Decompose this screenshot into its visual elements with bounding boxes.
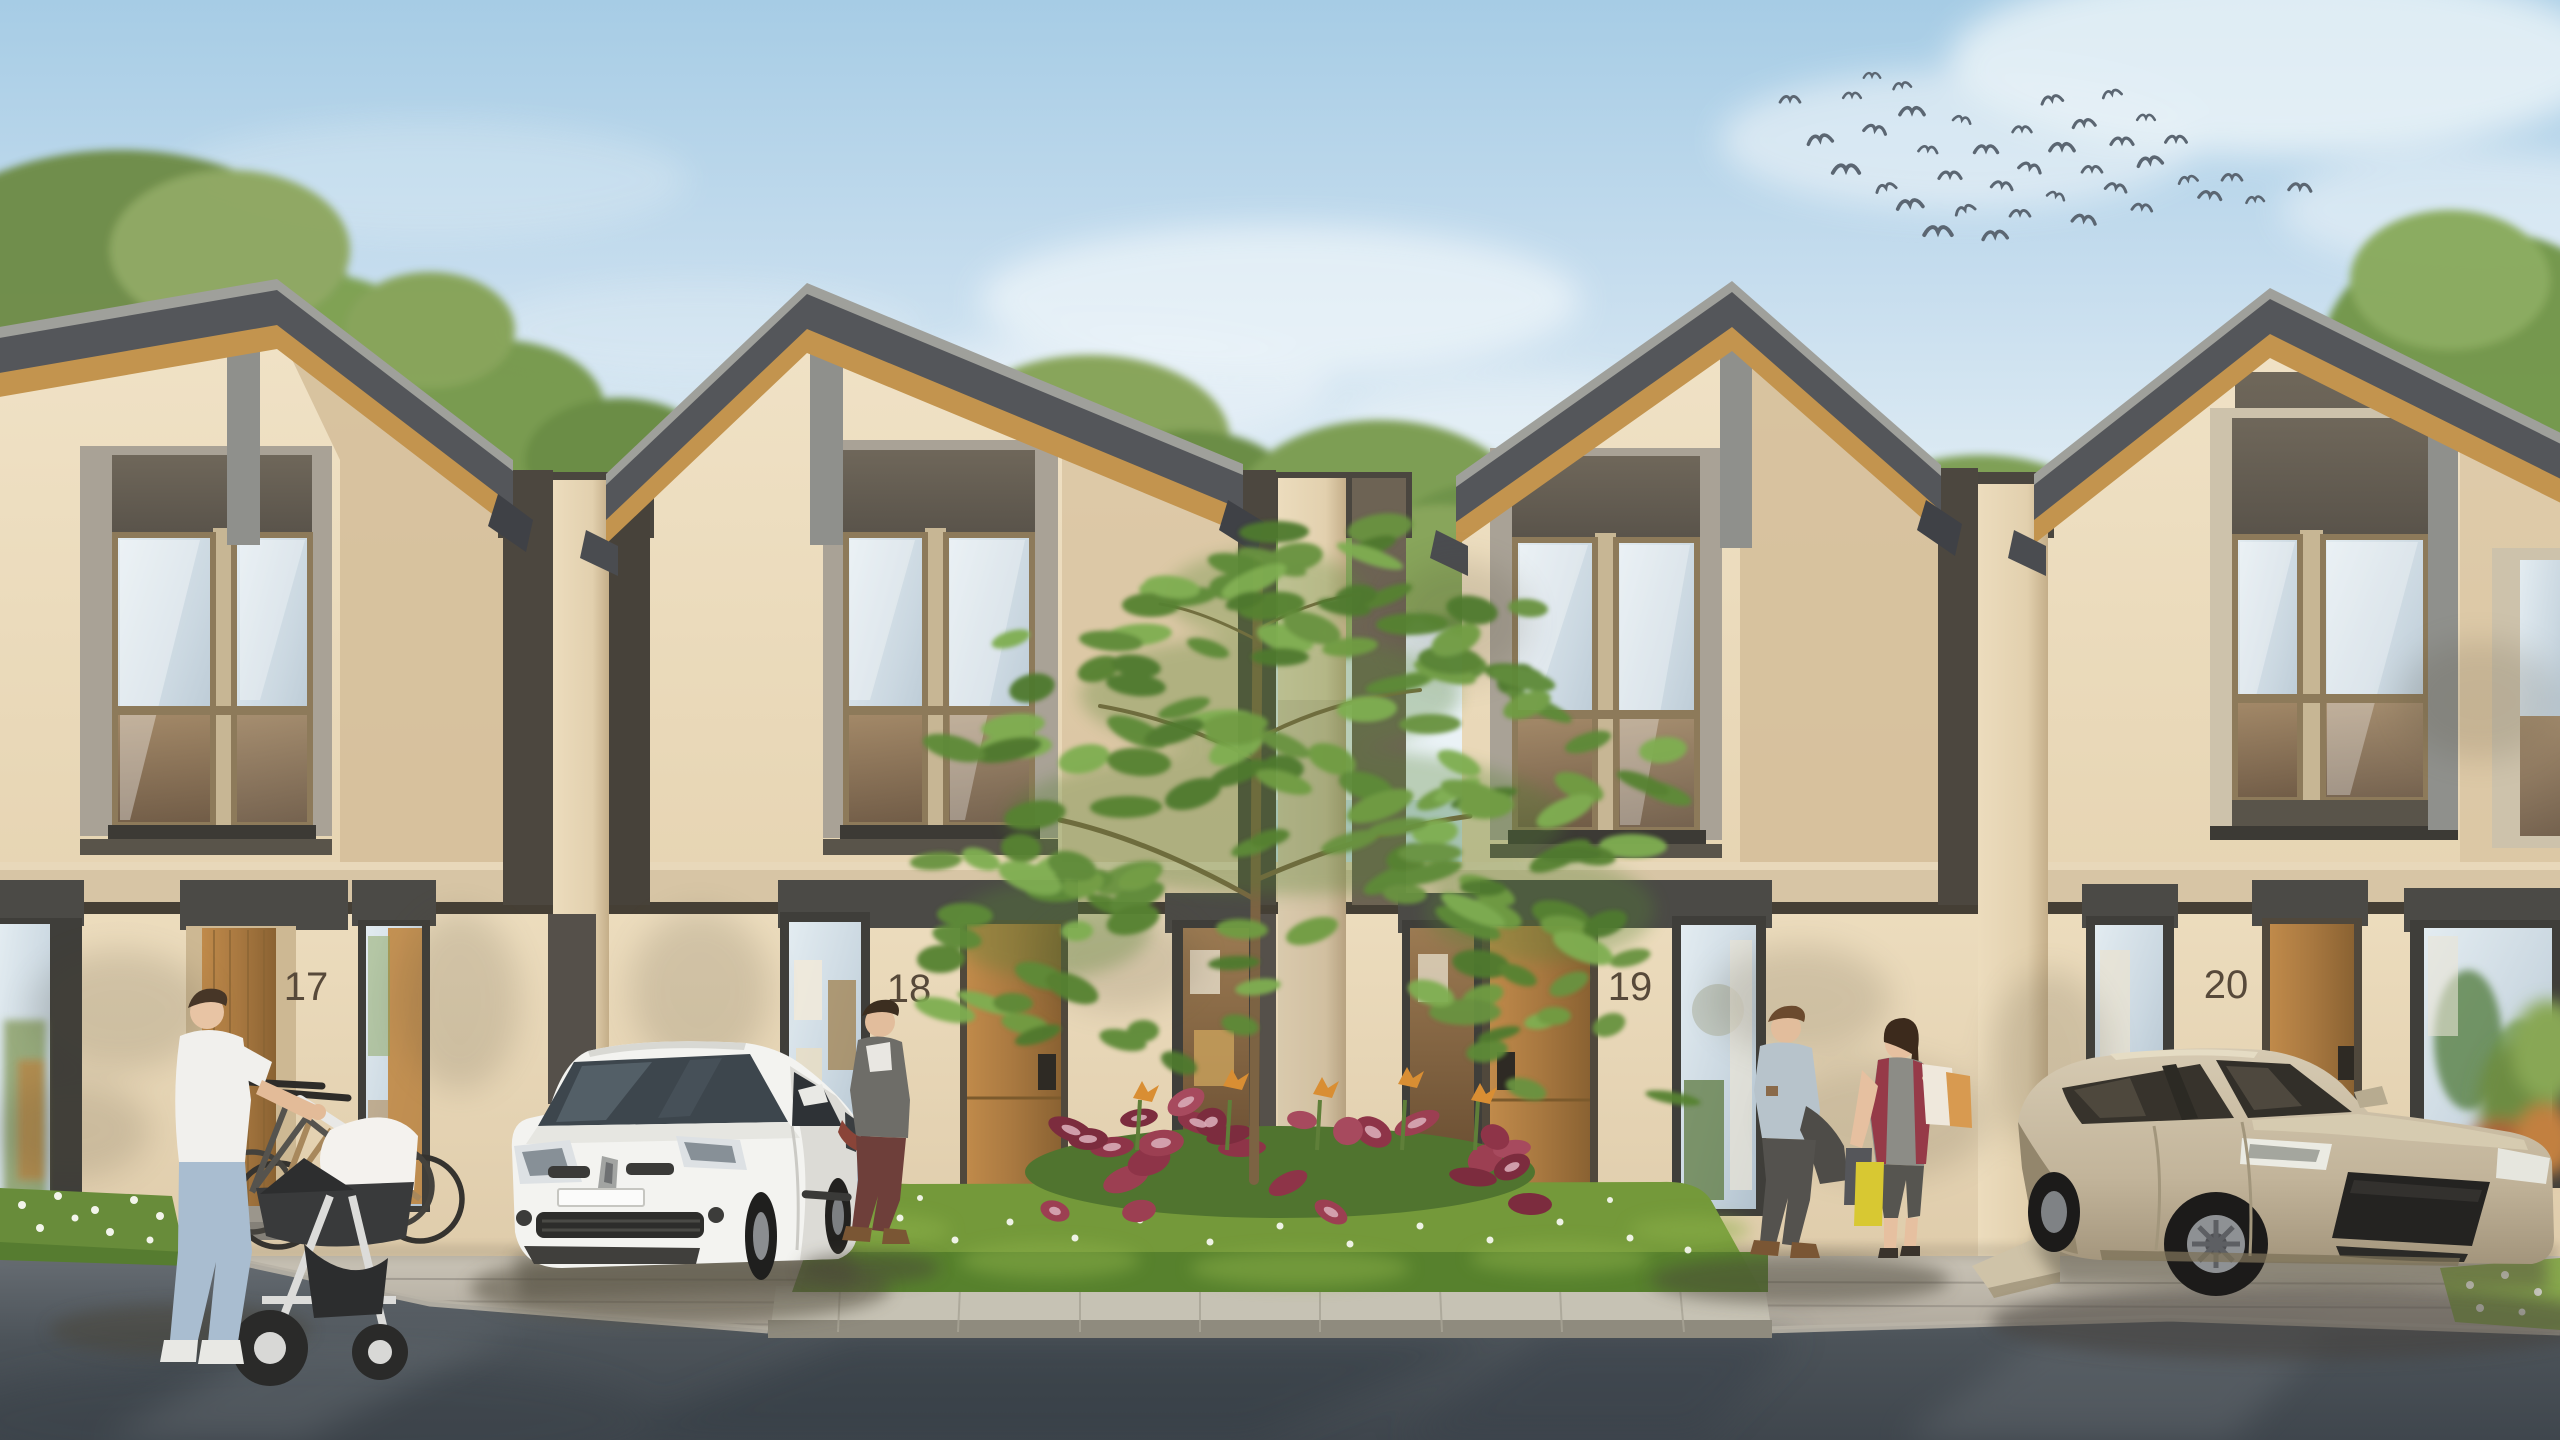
- svg-text:19: 19: [1608, 965, 1653, 1009]
- svg-text:20: 20: [2204, 963, 2249, 1007]
- svg-text:17: 17: [284, 965, 329, 1009]
